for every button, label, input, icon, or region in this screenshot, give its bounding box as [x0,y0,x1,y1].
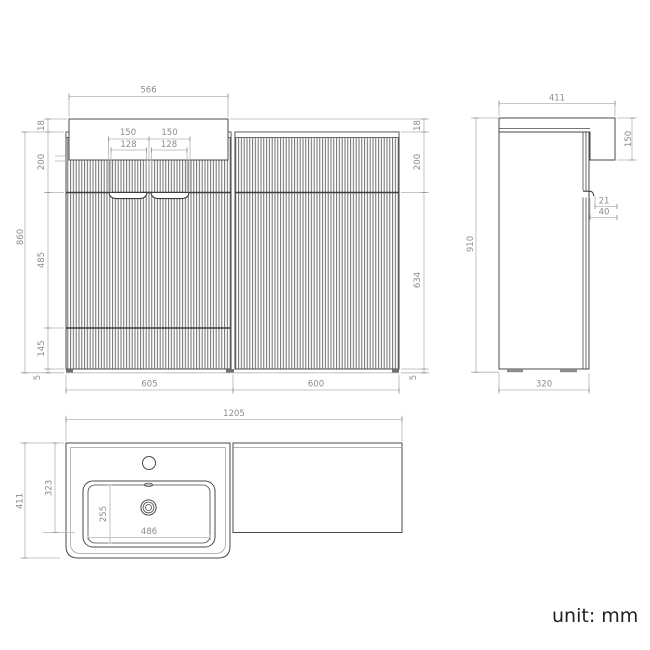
dim-left-lip: 18 [37,120,47,131]
dim-plan-total-width: 1205 [223,409,245,419]
plan-counter-extension [233,443,402,533]
dim-right-top-section: 200 [413,154,423,170]
front-left-cabinet [66,132,231,369]
dim-right-body: 634 [413,272,423,288]
front-foot-left [66,369,73,373]
front-right-cabinet [235,132,399,369]
dim-left-unit-width: 605 [141,380,157,390]
dim-left-top-section: 200 [37,154,47,170]
dim-right-lip: 18 [413,120,423,131]
dim-right-unit-width: 600 [308,380,324,390]
dim-handle-span-left: 150 [120,128,136,138]
side-view: 411 150 910 21 40 320 [466,94,637,394]
faucet-hole [143,457,156,470]
side-foot-back [507,369,523,372]
front-left-handle [109,193,147,199]
dim-handle-inset: 21 [599,197,610,207]
dim-plan-counter-depth: 323 [45,480,55,496]
side-foot-front [560,369,577,372]
front-right-handle [151,193,189,199]
dim-left-low-section: 145 [37,340,47,356]
dim-handle-width-left: 128 [120,140,136,150]
dim-handle-recess: 40 [599,208,610,218]
dim-side-total-height: 910 [466,236,476,252]
dim-side-front-drop: 150 [624,131,634,147]
front-foot-middle [226,369,234,373]
dim-side-depth: 411 [549,94,565,104]
top-view: 1205 411 323 255 486 [16,409,403,558]
front-right-cabinet-top-band [235,132,399,138]
front-view: 566 150 150 128 128 18 200 485 145 5 860… [16,86,429,395]
side-cabinet-body [499,132,589,369]
dim-side-base-depth: 320 [536,380,552,390]
dim-front-total-height: 860 [16,229,26,245]
dim-plan-overall-depth: 411 [16,493,26,509]
dim-countertop-width: 566 [140,86,156,96]
dim-right-plinth: 5 [409,375,419,380]
front-foot-right [392,369,399,373]
dim-left-mid-section: 485 [37,252,47,268]
vanity-drawing: 566 150 150 128 128 18 200 485 145 5 860… [0,0,650,650]
dim-basin-width: 486 [141,527,157,537]
technical-drawing-canvas: 566 150 150 128 128 18 200 485 145 5 860… [0,0,650,650]
dim-handle-span-right: 150 [161,128,177,138]
dim-basin-depth: 255 [99,506,109,522]
dim-handle-width-right: 128 [161,140,177,150]
unit-note: unit: mm [552,605,638,627]
dim-left-plinth: 5 [33,375,43,380]
